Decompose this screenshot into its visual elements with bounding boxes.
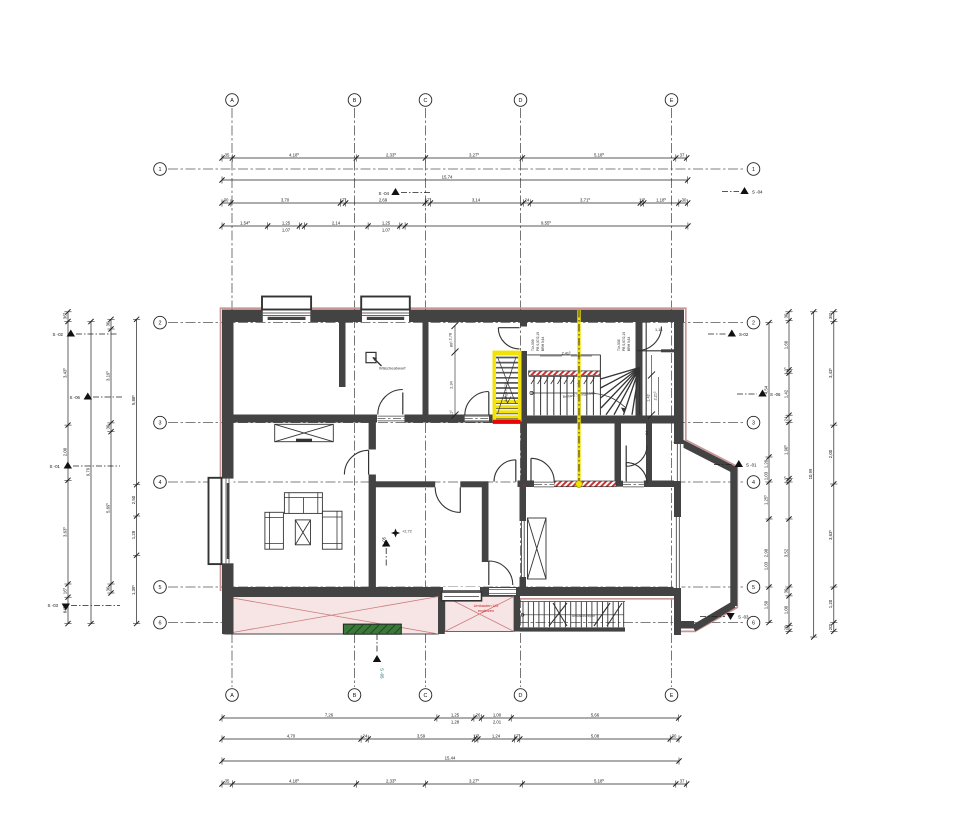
svg-text:C: C (424, 693, 428, 699)
svg-text:1,03: 1,03 (763, 471, 768, 480)
svg-text:1,28: 1,28 (131, 530, 136, 539)
svg-text:6: 6 (159, 621, 162, 627)
svg-text:A: A (230, 693, 234, 699)
svg-text:2,69: 2,69 (379, 197, 388, 202)
svg-text:Wäscheabwurf: Wäscheabwurf (379, 366, 406, 371)
svg-text:35: 35 (225, 152, 230, 157)
svg-text:30: 30 (105, 424, 110, 429)
svg-text:5: 5 (752, 585, 755, 591)
svg-text:1,24: 1,24 (492, 733, 501, 738)
svg-text:5,08: 5,08 (591, 733, 600, 738)
svg-text:S -04: S -04 (752, 190, 763, 195)
svg-text:3: 3 (752, 421, 755, 427)
svg-text:1,20: 1,20 (828, 599, 833, 608)
svg-text:5,66: 5,66 (591, 712, 600, 717)
svg-text:20: 20 (783, 625, 788, 630)
svg-text:24: 24 (783, 416, 788, 421)
svg-text:4: 4 (159, 480, 162, 486)
svg-text:PB 0,97/2,10: PB 0,97/2,10 (622, 332, 626, 351)
svg-text:ergänzen: ergänzen (478, 608, 494, 613)
svg-text:1,07: 1,07 (282, 227, 291, 232)
svg-text:1,42: 1,42 (783, 389, 788, 398)
svg-text:3: 3 (159, 421, 162, 427)
svg-text:30: 30 (783, 588, 788, 593)
svg-text:2,14: 2,14 (332, 220, 341, 225)
svg-text:1: 1 (159, 167, 162, 173)
svg-text:B: B (353, 693, 357, 699)
svg-text:3,59: 3,59 (417, 733, 426, 738)
svg-text:PB 0,97/2,10: PB 0,97/2,10 (536, 332, 540, 351)
svg-text:4: 4 (752, 480, 755, 486)
svg-text:S -03: S -03 (48, 603, 59, 608)
svg-text:BRH 0,64: BRH 0,64 (627, 337, 631, 351)
svg-text:9,79: 9,79 (85, 467, 90, 476)
svg-text:1,66: 1,66 (783, 340, 788, 349)
svg-text:2,50: 2,50 (131, 495, 136, 504)
svg-text:30: 30 (672, 733, 677, 738)
svg-text:2,00: 2,00 (62, 447, 67, 456)
svg-text:2,01: 2,01 (493, 719, 502, 724)
svg-text:2,34: 2,34 (450, 381, 454, 388)
svg-text:S-02: S-02 (739, 332, 749, 337)
svg-text:S -04: S -04 (379, 191, 390, 196)
svg-text:B: B (353, 98, 357, 104)
svg-text:+2,72: +2,72 (402, 529, 412, 534)
svg-text:7,26: 7,26 (325, 712, 334, 717)
svg-text:S -01: S -01 (746, 463, 757, 468)
svg-text:37: 37 (680, 778, 685, 783)
svg-text:10,99: 10,99 (808, 468, 813, 479)
svg-text:C: C (424, 98, 428, 104)
svg-text:35: 35 (225, 778, 230, 783)
svg-text:2: 2 (752, 321, 755, 327)
svg-text:2,90: 2,90 (763, 548, 768, 557)
svg-text:37: 37 (680, 152, 685, 157)
svg-text:5: 5 (159, 585, 162, 591)
svg-text:A: A (230, 98, 234, 104)
svg-text:1,00: 1,00 (493, 712, 502, 717)
svg-text:30: 30 (105, 321, 110, 326)
svg-text:3,70: 3,70 (281, 197, 290, 202)
svg-text:1,00: 1,00 (783, 605, 788, 614)
svg-text:1,42: 1,42 (647, 394, 651, 401)
svg-text:Tür-008: Tür-008 (617, 339, 621, 351)
svg-text:1,28: 1,28 (451, 719, 460, 724)
svg-text:2,00: 2,00 (828, 449, 833, 458)
svg-text:30: 30 (682, 197, 687, 202)
svg-text:1,03: 1,03 (763, 561, 768, 570)
svg-text:S -02: S -02 (53, 332, 64, 337)
svg-text:9 Stg 17,5/29: 9 Stg 17,5/29 (504, 382, 508, 401)
svg-text:1,25: 1,25 (451, 712, 460, 717)
svg-text:24: 24 (645, 431, 649, 435)
svg-text:2: 2 (159, 321, 162, 327)
svg-text:S -06: S -06 (70, 395, 81, 400)
svg-text:30: 30 (783, 313, 788, 318)
svg-text:S -01: S -01 (50, 464, 61, 469)
svg-text:1,07: 1,07 (382, 227, 391, 232)
svg-text:E: E (670, 693, 674, 699)
svg-text:1: 1 (752, 167, 755, 173)
svg-text:S -03: S -03 (738, 615, 749, 620)
svg-text:26: 26 (476, 712, 481, 717)
svg-text:15,44: 15,44 (445, 755, 456, 760)
svg-text:30: 30 (105, 586, 110, 591)
svg-text:1,20: 1,20 (763, 459, 768, 468)
svg-text:S -05: S -05 (380, 668, 385, 679)
svg-text:3,52: 3,52 (783, 548, 788, 557)
svg-text:4,70: 4,70 (287, 733, 296, 738)
svg-text:6: 6 (752, 621, 755, 627)
svg-text:70: 70 (523, 484, 527, 488)
svg-text:1,50: 1,50 (763, 600, 768, 609)
svg-text:S -06: S -06 (770, 392, 781, 397)
svg-text:1,25: 1,25 (282, 220, 291, 225)
svg-text:30: 30 (224, 197, 229, 202)
svg-text:15,74: 15,74 (442, 174, 453, 179)
svg-text:1,25: 1,25 (382, 220, 391, 225)
svg-text:E: E (670, 98, 674, 104)
svg-text:24: 24 (525, 197, 530, 202)
svg-text:Tür-009: Tür-009 (531, 339, 535, 351)
svg-text:1,18: 1,18 (655, 328, 662, 332)
svg-text:BRH 0,64: BRH 0,64 (541, 337, 545, 351)
svg-text:24: 24 (363, 733, 368, 738)
svg-text:3,14: 3,14 (472, 197, 481, 202)
svg-text:D: D (519, 693, 523, 699)
svg-text:Bestandstreppe: Bestandstreppe (572, 614, 595, 618)
svg-text:D: D (519, 98, 523, 104)
